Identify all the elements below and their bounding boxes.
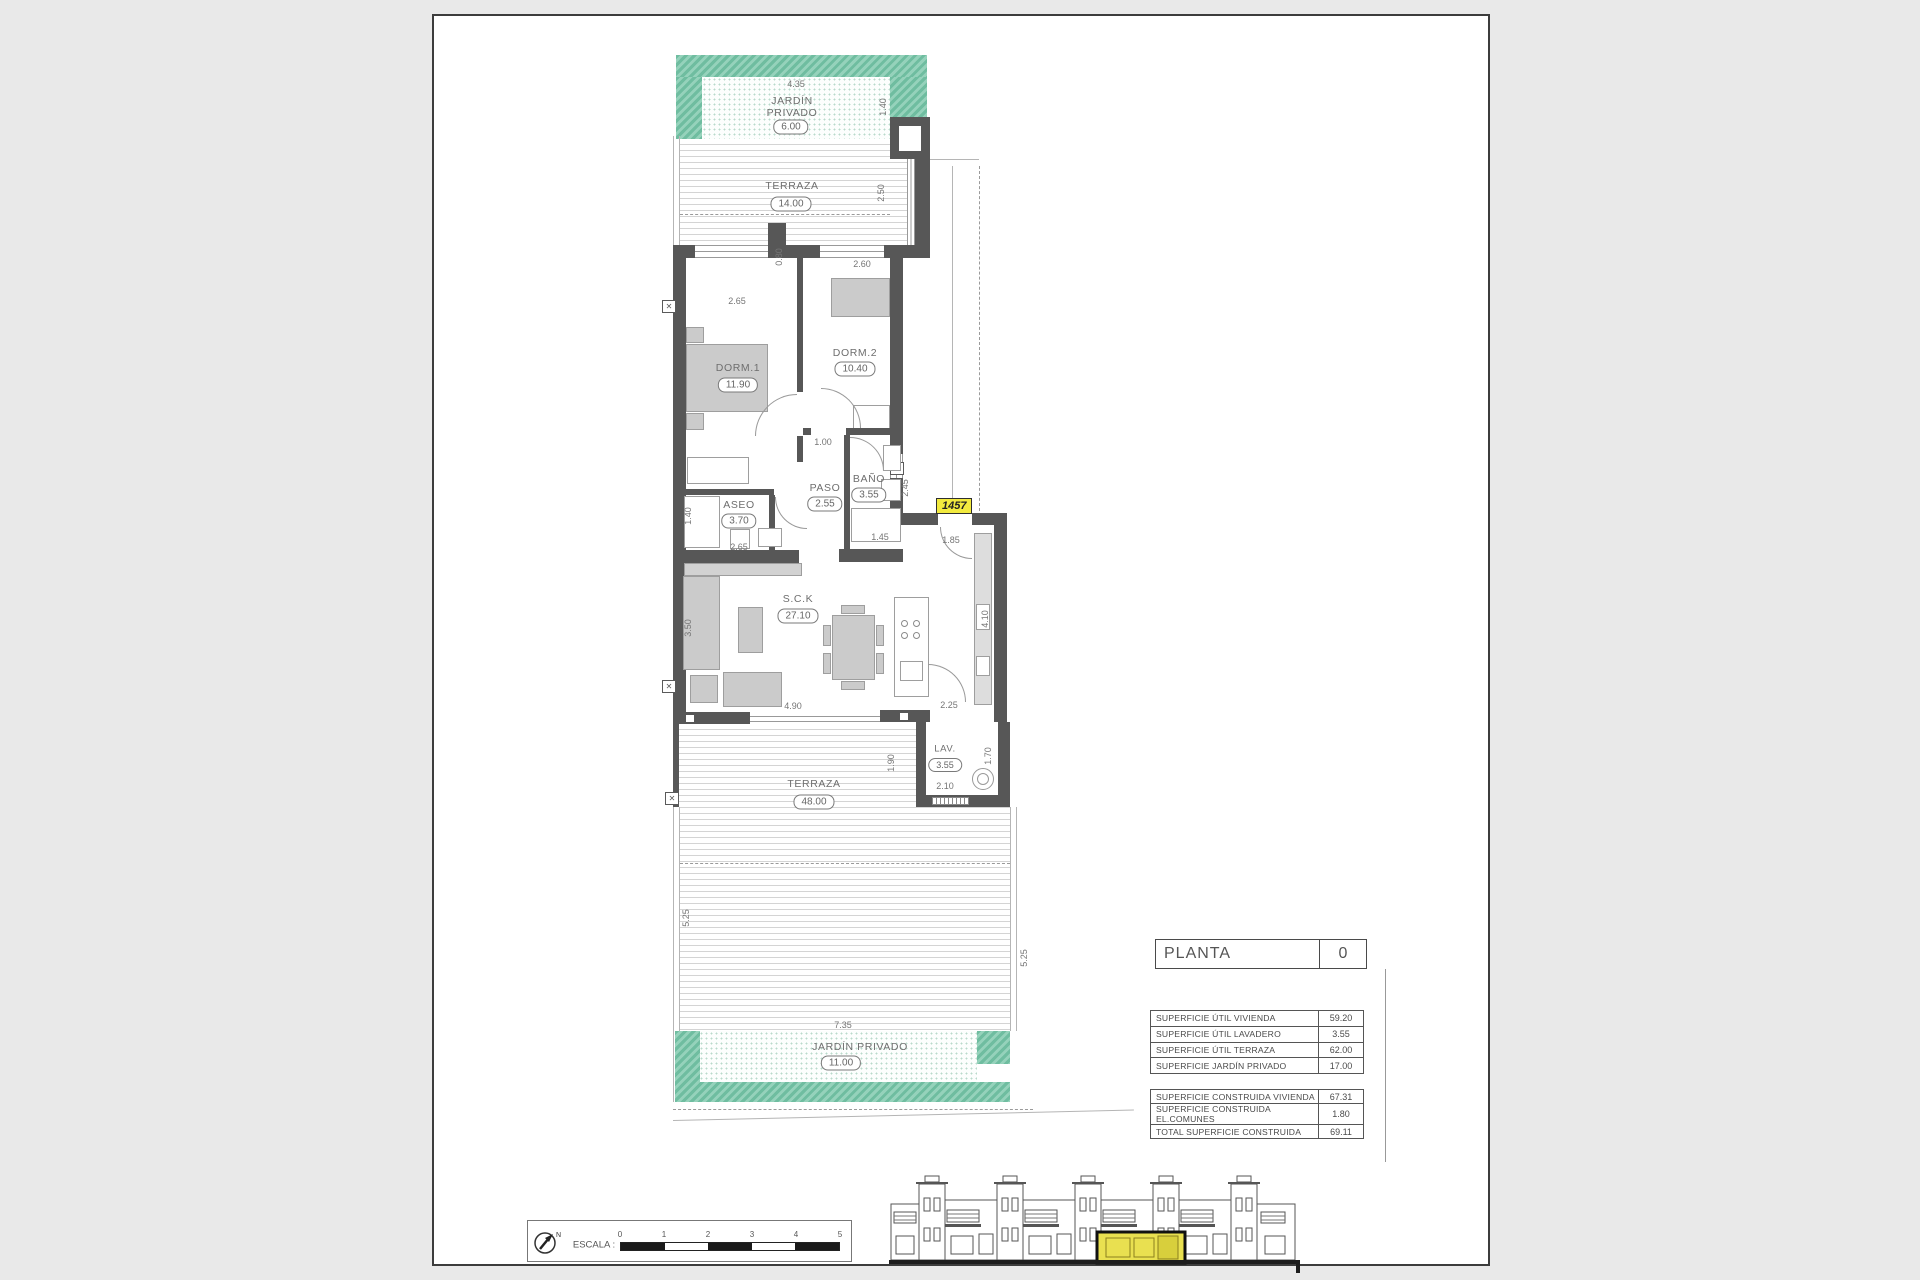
dim-bano-depth: 2.45 bbox=[900, 479, 910, 497]
boundary-dashed-line bbox=[979, 166, 980, 516]
paso-label: PASO bbox=[810, 482, 841, 494]
lav-label: LAV. bbox=[934, 744, 955, 755]
dim-aseo-depth: 1.40 bbox=[683, 507, 693, 525]
table-row: SUPERFICIE CONSTRUIDA VIVIENDA67.31 bbox=[1151, 1090, 1363, 1104]
wall-tie-marker: ✕ bbox=[662, 680, 676, 693]
nightstand bbox=[686, 413, 704, 430]
cooktop-burner bbox=[901, 632, 908, 639]
plan-sheet: 4.35 JARDÍN PRIVADO 6.00 1.40 4.85 TERRA… bbox=[432, 14, 1490, 1266]
boundary-line bbox=[673, 807, 674, 1102]
wall bbox=[994, 525, 1007, 722]
dorm1-area-value: 11.90 bbox=[718, 378, 758, 393]
table-row: SUPERFICIE ÚTIL TERRAZA62.00 bbox=[1151, 1043, 1363, 1059]
frame-line bbox=[1385, 969, 1386, 1162]
unit-number-tag: 1457 bbox=[936, 498, 972, 514]
wall bbox=[797, 258, 803, 392]
bano-label: BAÑO bbox=[853, 473, 885, 485]
scale-tick: 4 bbox=[794, 1230, 798, 1239]
surface-table-construida: SUPERFICIE CONSTRUIDA VIVIENDA67.31 SUPE… bbox=[1150, 1089, 1364, 1139]
compass-icon: N bbox=[532, 1228, 564, 1258]
door-opening bbox=[938, 513, 972, 525]
dim-terraza-b-left: 5.25 bbox=[681, 909, 691, 927]
sideboard bbox=[684, 563, 802, 576]
dorm1-label: DORM.1 bbox=[716, 362, 760, 374]
terraza-top-label: TERRAZA bbox=[765, 180, 818, 192]
wall bbox=[797, 436, 803, 462]
boundary-line bbox=[1016, 807, 1017, 1031]
dim-bano-width: 1.45 bbox=[871, 532, 889, 542]
dim-jardin-b-width: 7.35 bbox=[834, 1020, 852, 1030]
toilet bbox=[758, 528, 782, 547]
terraza-bottom-area-value: 48.00 bbox=[793, 795, 834, 810]
terraza-bottom-label: TERRAZA bbox=[787, 778, 840, 790]
planta-label: PLANTA bbox=[1156, 940, 1319, 968]
scale-bar bbox=[620, 1242, 840, 1251]
boundary-line bbox=[679, 136, 680, 246]
dining-chair bbox=[823, 653, 831, 674]
door-arc-aseo bbox=[775, 497, 807, 529]
table-row: SUPERFICIE JARDÍN PRIVADO17.00 bbox=[1151, 1058, 1363, 1073]
dim-kitchen-wall: 4.10 bbox=[980, 610, 990, 628]
dim-sofa-wall: 3.50 bbox=[683, 619, 693, 637]
scale-tick: 1 bbox=[662, 1230, 666, 1239]
cooktop-burner bbox=[913, 632, 920, 639]
kitchen-island bbox=[894, 597, 929, 697]
wall-tie-marker: ✕ bbox=[662, 300, 676, 313]
nightstand bbox=[686, 327, 704, 343]
surface-table-util: SUPERFICIE ÚTIL VIVIENDA59.20 SUPERFICIE… bbox=[1150, 1010, 1364, 1074]
terraza-top-area bbox=[679, 139, 907, 245]
window-dorm2 bbox=[820, 245, 884, 258]
dorm2-area-value: 10.40 bbox=[834, 362, 875, 377]
washing-machine-drum bbox=[977, 773, 989, 785]
garden-bottom-area-value: 11.00 bbox=[821, 1056, 861, 1071]
dim-dorm1-window: 2.65 bbox=[728, 296, 746, 306]
dim-sck-window: 4.90 bbox=[784, 701, 802, 711]
dorm2-label: DORM.2 bbox=[833, 347, 877, 359]
sck-label: S.C.K bbox=[783, 593, 813, 605]
scale-tick: 3 bbox=[750, 1230, 754, 1239]
building-elevation bbox=[889, 1174, 1309, 1274]
dim-lav-right: 1.70 bbox=[983, 747, 993, 765]
wall bbox=[680, 489, 774, 495]
highlighted-unit bbox=[1097, 1232, 1185, 1263]
kitchen-sink bbox=[900, 661, 923, 681]
dim-entry: 1.85 bbox=[942, 535, 960, 545]
site-boundary-line bbox=[673, 1110, 1134, 1121]
wardrobe-dorm1 bbox=[687, 457, 749, 484]
setback-dashed-line bbox=[680, 214, 890, 215]
wall bbox=[916, 722, 926, 798]
table-row: SUPERFICIE ÚTIL LAVADERO3.55 bbox=[1151, 1027, 1363, 1043]
svg-text:N: N bbox=[556, 1232, 561, 1239]
door-opening bbox=[811, 428, 846, 435]
aseo-label: ASEO bbox=[723, 499, 755, 511]
sliding-door bbox=[750, 716, 880, 722]
dim-top-right: 1.40 bbox=[878, 98, 888, 116]
boundary-line bbox=[1010, 807, 1011, 1031]
table-row: SUPERFICIE ÚTIL VIVIENDA59.20 bbox=[1151, 1011, 1363, 1027]
dim-aseo-width: 2.65 bbox=[730, 542, 748, 552]
paso-area-value: 2.55 bbox=[807, 497, 842, 512]
garden-hatch-top-strip bbox=[676, 55, 927, 77]
garden-hatch-bottom-right bbox=[977, 1031, 1010, 1064]
dining-chair bbox=[841, 681, 865, 690]
wall bbox=[839, 549, 903, 562]
dim-terraza-b-right: 5.25 bbox=[1019, 949, 1029, 967]
scale-segment bbox=[708, 1243, 752, 1250]
wall bbox=[903, 245, 930, 258]
dim-terraza-top-depth: 2.50 bbox=[876, 184, 886, 202]
wall-detail bbox=[900, 713, 908, 720]
dim-top-width: 4.35 bbox=[787, 79, 805, 89]
boundary-line bbox=[952, 166, 953, 516]
planta-value: 0 bbox=[1319, 940, 1366, 968]
sofa-short bbox=[723, 672, 782, 707]
wall bbox=[915, 159, 930, 246]
appliance bbox=[976, 656, 990, 676]
cooktop-burner bbox=[901, 620, 908, 627]
scale-segment bbox=[752, 1243, 796, 1250]
dining-chair bbox=[841, 605, 865, 614]
wall-tie-marker: ✕ bbox=[665, 792, 679, 805]
boundary-line bbox=[673, 136, 674, 246]
lav-area-value: 3.55 bbox=[928, 758, 962, 772]
garden-hatch-top-right bbox=[890, 77, 927, 117]
scale-segment bbox=[665, 1243, 709, 1250]
door-arc-lav bbox=[928, 664, 966, 702]
bed-dorm2 bbox=[831, 278, 890, 317]
scale-segment bbox=[795, 1243, 839, 1250]
window-dorm1 bbox=[695, 245, 768, 258]
dim-hall: 1.00 bbox=[814, 437, 832, 447]
wall bbox=[768, 223, 786, 245]
lav-window bbox=[932, 797, 969, 805]
boundary-line bbox=[930, 159, 979, 160]
garden-hatch-top-left bbox=[676, 77, 702, 139]
garden-top-label-2: PRIVADO bbox=[767, 107, 818, 119]
garden-top-label-1: JARDÍN bbox=[771, 95, 813, 107]
coffee-table bbox=[738, 607, 763, 653]
dining-chair bbox=[823, 625, 831, 646]
scale-label: ESCALA : bbox=[573, 1240, 615, 1251]
bano-area-value: 3.55 bbox=[851, 488, 886, 503]
setback-dashed-line bbox=[680, 863, 1010, 864]
table-row: TOTAL SUPERFICIE CONSTRUIDA69.11 bbox=[1151, 1125, 1363, 1138]
window bbox=[907, 159, 915, 246]
sck-area-value: 27.10 bbox=[777, 609, 818, 624]
dining-table bbox=[832, 615, 875, 680]
dim-step: 0.80 bbox=[774, 248, 784, 266]
aseo-area-value: 3.70 bbox=[721, 514, 756, 529]
garden-top-area-value: 6.00 bbox=[773, 120, 808, 135]
side-table bbox=[690, 675, 718, 703]
door-arc-bano bbox=[850, 437, 884, 471]
garden-bottom-label: JARDÍN PRIVADO bbox=[812, 1041, 908, 1053]
scale-segment bbox=[621, 1243, 665, 1250]
scale-tick: 2 bbox=[706, 1230, 710, 1239]
garden-hatch-bottom-band bbox=[675, 1082, 1010, 1102]
site-dashed-line bbox=[673, 1109, 1033, 1110]
dining-chair bbox=[876, 625, 884, 646]
porch-window bbox=[899, 126, 921, 151]
cooktop-burner bbox=[913, 620, 920, 627]
terraza-top-area-value: 14.00 bbox=[770, 197, 811, 212]
scale-tick: 0 bbox=[618, 1230, 622, 1239]
wall-detail bbox=[686, 715, 694, 722]
sink bbox=[883, 445, 901, 471]
dim-lav-width: 2.10 bbox=[936, 781, 954, 791]
door-arc-dorm2 bbox=[821, 388, 861, 428]
scale-tick: 5 bbox=[838, 1230, 842, 1239]
table-row: SUPERFICIE CONSTRUIDA EL.COMUNES1.80 bbox=[1151, 1104, 1363, 1125]
planta-title-block: PLANTA 0 bbox=[1155, 939, 1367, 969]
dining-chair bbox=[876, 653, 884, 674]
dim-dorm2-window: 2.60 bbox=[853, 259, 871, 269]
wall bbox=[998, 722, 1010, 798]
dim-lav-depth: 1.90 bbox=[886, 754, 896, 772]
screenshot-root: { "page": { "planta_label": "PLANTA", "p… bbox=[0, 0, 1920, 1280]
